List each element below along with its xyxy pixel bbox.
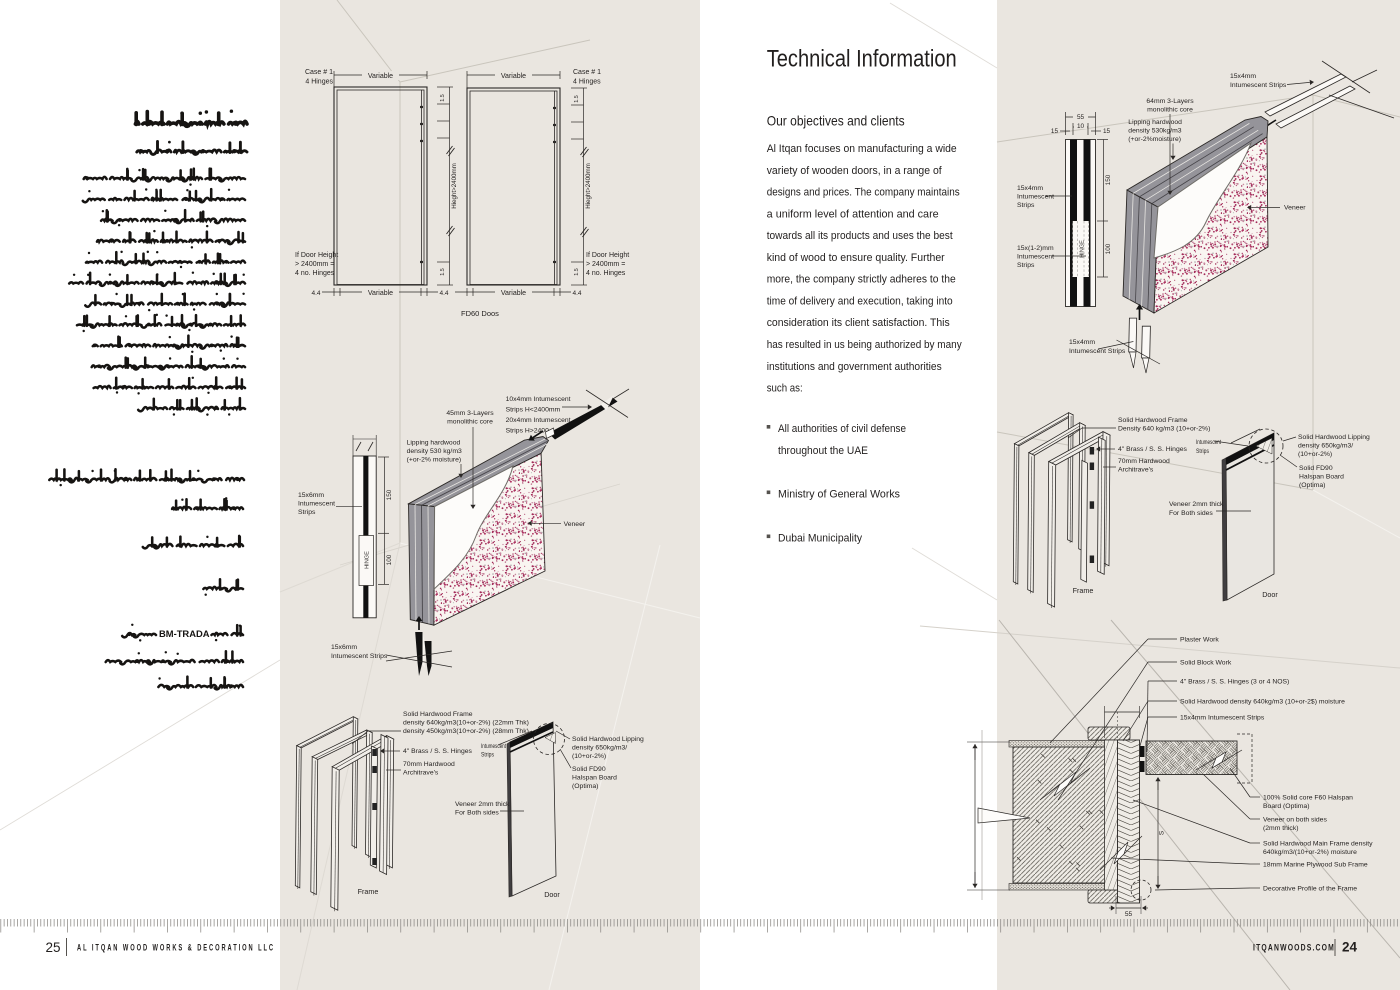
svg-text:640kg/m3/(10+or-2%) moisture: 640kg/m3/(10+or-2%) moisture [1263,849,1357,856]
svg-text:4" Brass / S. S. Hinges: 4" Brass / S. S. Hinges [403,748,472,755]
svg-text:kind of wood to ensure quality: kind of wood to ensure quality. Further [767,252,945,264]
svg-text:Halspan Board: Halspan Board [572,775,617,782]
svg-text:Dubai Municipality: Dubai Municipality [778,533,863,545]
svg-text:Variable: Variable [368,73,393,80]
svg-text:Lipping hardwood: Lipping hardwood [1128,119,1182,126]
svg-text:HINGE: HINGE [365,551,371,569]
svg-text:4.4: 4.4 [572,290,581,297]
svg-text:100% Solid core F60 Halspan: 100% Solid core F60 Halspan [1263,795,1353,802]
svg-text:density 530kg/m3: density 530kg/m3 [1128,128,1181,135]
svg-text:towards all its products and u: towards all its products and uses the be… [767,230,953,242]
svg-text:Intumescent Strips: Intumescent Strips [1069,348,1126,355]
svg-text:designs and prices. The compa: designs and prices. The company maintain… [767,187,961,199]
svg-text:10x4mm Intumescent: 10x4mm Intumescent [506,396,571,403]
svg-text:Density 640 kg/m3 (10+or-2%): Density 640 kg/m3 (10+or-2%) [1118,426,1210,433]
svg-text:Solid Hardwood Lipping: Solid Hardwood Lipping [1298,434,1370,441]
svg-text:Plaster Work: Plaster Work [1180,637,1219,644]
svg-text:Strips: Strips [1196,448,1209,455]
svg-text:> 2400mm =: > 2400mm = [586,261,625,268]
svg-text:1.5: 1.5 [440,268,446,276]
svg-text:(Optima): (Optima) [1299,482,1325,489]
svg-text:If Door Height: If Door Height [586,252,629,259]
svg-text:Frame: Frame [1073,586,1094,595]
svg-text:institutions and government au: institutions and government authorities [767,361,943,373]
svg-text:100: 100 [1105,243,1112,254]
svg-text:If Door Height: If Door Height [295,252,338,259]
svg-text:70mm Hardwood: 70mm Hardwood [1118,458,1170,465]
svg-text:Intumescent Strips: Intumescent Strips [1230,82,1287,89]
svg-text:Veneer: Veneer [1284,205,1306,212]
svg-text:Strips: Strips [1017,262,1035,269]
svg-text:Our objectives and clients: Our objectives and clients [767,114,905,129]
svg-text:Intumescent: Intumescent [1017,194,1054,201]
svg-text:Al Itqan focuses on manufactur: Al Itqan focuses on manufacturing a wide [767,143,957,155]
svg-text:4 Hinges: 4 Hinges [305,79,333,86]
svg-text:64mm 3-Layers: 64mm 3-Layers [1146,98,1194,105]
svg-text:15: 15 [1103,128,1111,135]
svg-text:Hieght>2400mm: Hieght>2400mm [585,163,592,209]
svg-text:Solid FD90: Solid FD90 [1299,465,1333,472]
svg-text:4 no. Hinges: 4 no. Hinges [586,270,626,277]
svg-text:S: S [1159,830,1166,835]
svg-text:150: 150 [1105,174,1112,185]
svg-text:4 no. Hinges: 4 no. Hinges [295,270,335,277]
svg-text:Solid Block Work: Solid Block Work [1180,660,1232,667]
svg-text:Decorative Profile of the Fram: Decorative Profile of the Frame [1263,886,1357,893]
svg-text:70mm Hardwood: 70mm Hardwood [403,761,455,768]
svg-text:Solid Hardwood Lipping: Solid Hardwood Lipping [572,736,644,743]
svg-text:150: 150 [386,489,393,500]
svg-text:Halspan Board: Halspan Board [1299,474,1344,481]
svg-text:Technical Information: Technical Information [767,46,957,73]
svg-text:density 650kg/m3/: density 650kg/m3/ [1298,443,1353,450]
svg-text:density 530 kg/m3: density 530 kg/m3 [407,448,462,455]
svg-text:For Both sides: For Both sides [455,810,499,817]
svg-text:(10+or-2%): (10+or-2%) [1298,451,1332,458]
svg-text:15x4mm: 15x4mm [1069,339,1095,346]
svg-text:24: 24 [1342,940,1358,955]
svg-text:15x6mm: 15x6mm [331,644,357,651]
svg-text:20x4mm Intumescent: 20x4mm Intumescent [506,417,571,424]
svg-text:Variable: Variable [501,73,526,80]
svg-text:4 Hinges: 4 Hinges [573,79,601,86]
svg-text:Veneer 2mm thick: Veneer 2mm thick [1169,501,1224,508]
svg-text:Frame: Frame [358,887,379,896]
svg-text:15x6mm: 15x6mm [298,492,324,499]
svg-text:has resulted in us being autho: has resulted in us being authorized by m… [767,339,963,351]
svg-text:Solid Hardwood density 640kg/m: Solid Hardwood density 640kg/m3 (10+or-2… [1180,699,1345,706]
svg-text:25: 25 [45,940,60,955]
svg-text:Strips H<2400mm: Strips H<2400mm [506,407,561,414]
svg-text:4.4: 4.4 [311,290,320,297]
svg-text:time of delivery and execution: time of delivery and execution, taking i… [767,296,953,308]
svg-text:55: 55 [1125,911,1133,918]
svg-text:> 2400mm =: > 2400mm = [295,261,334,268]
svg-text:density 450kg/m3(10+or-2%) (28: density 450kg/m3(10+or-2%) (28mm Thk) [403,728,529,735]
svg-text:Solid Hardwood Frame: Solid Hardwood Frame [1118,417,1188,424]
svg-text:monolithic core: monolithic core [447,419,493,426]
svg-text:Lipping hardwood: Lipping hardwood [407,440,461,447]
svg-text:Hieght>2400mm: Hieght>2400mm [451,163,458,209]
svg-text:(10+or-2%): (10+or-2%) [572,753,606,760]
svg-text:Solid Hardwood Main Frame dens: Solid Hardwood Main Frame density [1263,841,1373,848]
svg-text:Solid FD90: Solid FD90 [572,766,606,773]
svg-text:Strips: Strips [298,509,316,516]
svg-text:(+or-2% moisture): (+or-2% moisture) [407,457,462,464]
svg-text:15: 15 [1051,128,1059,135]
svg-text:consideration its client satis: consideration its client satisfaction. T… [767,317,951,329]
svg-text:15x4mm Intumescent Strips: 15x4mm Intumescent Strips [1180,715,1265,722]
svg-text:Case # 1: Case # 1 [305,69,333,76]
svg-text:1.5: 1.5 [574,268,580,276]
svg-text:Solid Hardwood Frame: Solid Hardwood Frame [403,711,473,718]
svg-text:Veneer on both sides: Veneer on both sides [1263,817,1327,824]
svg-text:density 650kg/m3/: density 650kg/m3/ [572,745,627,752]
svg-text:variety of wooden doors, in a: variety of wooden doors, in a range of [767,165,943,177]
svg-text:Veneer 2mm thick: Veneer 2mm thick [455,801,510,808]
svg-text:Architrave's: Architrave's [403,770,439,777]
svg-text:Case # 1: Case # 1 [573,69,601,76]
svg-text:Veneer: Veneer [564,521,586,528]
svg-text:Ministry of General Works: Ministry of General Works [778,489,901,501]
svg-text:BM-TRADA: BM-TRADA [159,628,210,639]
svg-text:55: 55 [1077,114,1085,121]
svg-text:4.4: 4.4 [439,290,448,297]
svg-text:4" Brass / S. S. Hinges: 4" Brass / S. S. Hinges [1118,446,1187,453]
svg-text:15x4mm: 15x4mm [1017,185,1043,192]
svg-text:a uniform level of attention a: a uniform level of attention and care [767,208,939,220]
svg-text:18mm Marine Plywood Sub Frame: 18mm Marine Plywood Sub Frame [1263,862,1368,869]
svg-text:15x4mm: 15x4mm [1230,73,1256,80]
svg-text:Board (Optima): Board (Optima) [1263,803,1309,810]
svg-text:100: 100 [386,554,393,565]
svg-text:throughout the UAE: throughout the UAE [778,445,868,457]
svg-text:AL ITQAN WOOD WORKS & DECORATI: AL ITQAN WOOD WORKS & DECORATION LLC [77,943,275,953]
svg-text:All authorities of civil defen: All authorities of civil defense [778,423,906,435]
svg-text:Strips: Strips [481,752,494,759]
svg-text:ITQANWOODS.COM: ITQANWOODS.COM [1253,943,1335,953]
svg-text:1.5: 1.5 [574,95,580,103]
svg-text:(Optima): (Optima) [572,783,598,790]
svg-text:(+or-2%moisture): (+or-2%moisture) [1128,136,1181,143]
svg-text:Intumescent: Intumescent [1017,254,1054,261]
svg-text:Variable: Variable [368,290,393,297]
svg-text:Intumescent: Intumescent [1196,439,1221,446]
svg-text:more, the company strictly adh: more, the company strictly adheres to th… [767,274,956,286]
svg-text:such as:: such as: [767,383,803,395]
svg-text:Intumescent: Intumescent [481,743,506,750]
svg-text:HINGE: HINGE [1079,240,1085,258]
svg-text:4" Brass / S. S. Hinges (3 or: 4" Brass / S. S. Hinges (3 or 4 NOS) [1180,679,1289,686]
svg-text:density 640kg/m3(10+or-2%) (22: density 640kg/m3(10+or-2%) (22mm Thk) [403,720,529,727]
svg-text:monolithic core: monolithic core [1147,107,1193,114]
svg-text:Variable: Variable [501,290,526,297]
svg-text:Intumescent: Intumescent [298,501,335,508]
svg-text:Architrave's: Architrave's [1118,467,1154,474]
svg-text:Door: Door [544,890,560,899]
svg-text:1.5: 1.5 [440,94,446,102]
svg-text:Strips: Strips [1017,202,1035,209]
svg-text:Intumescent Strips: Intumescent Strips [331,653,388,660]
svg-text:Door: Door [1262,590,1278,599]
svg-text:10: 10 [1077,123,1085,130]
svg-text:15x(1-2)mm: 15x(1-2)mm [1017,245,1054,252]
svg-text:For Both sides: For Both sides [1169,510,1213,517]
svg-text:FD60 Doos: FD60 Doos [461,309,499,318]
svg-text:(2mm thick): (2mm thick) [1263,825,1299,832]
svg-text:45mm 3-Layers: 45mm 3-Layers [446,410,494,417]
